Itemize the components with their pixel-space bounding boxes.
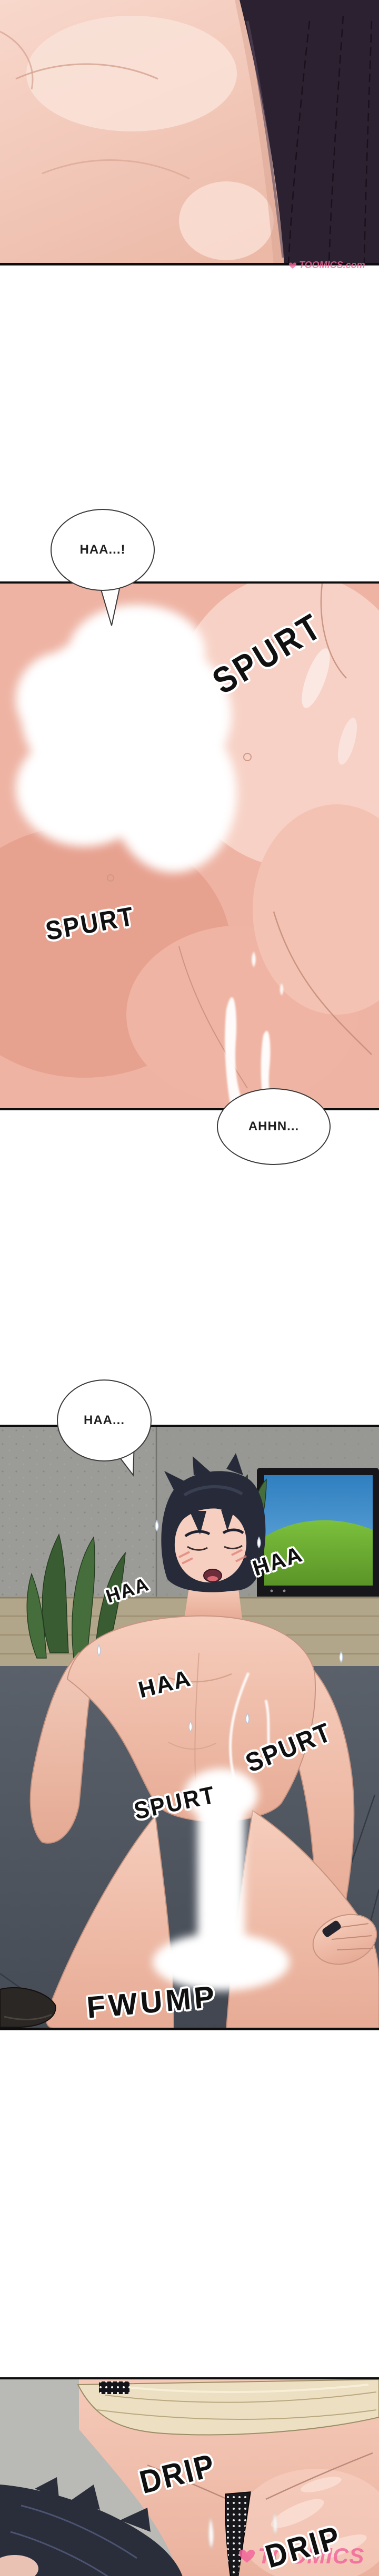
watermark-logo-icon	[238, 2548, 256, 2564]
watermark-logo-icon	[288, 262, 297, 269]
speech-bubble-haa-2: HAA...	[57, 1379, 152, 1461]
comic-page: HAA...! AHHN... HAA... SPURT SPURT HAA H…	[0, 0, 379, 2576]
panel-2	[0, 581, 379, 1110]
speech-bubble-haa-1: HAA...!	[51, 509, 155, 591]
bubble-text: AHHN...	[248, 1119, 299, 1134]
watermark-text: TOOMICS.com	[299, 260, 365, 271]
panel-1	[0, 0, 379, 265]
bubble-text: HAA...!	[80, 543, 126, 557]
site-watermark-top: TOOMICS.com	[288, 260, 365, 271]
speech-bubble-ahhn: AHHN...	[217, 1088, 331, 1165]
panel-2-art	[0, 584, 379, 1110]
bubble-text: HAA...	[84, 1413, 125, 1428]
panel-1-art	[0, 0, 379, 265]
tv	[257, 1468, 379, 1600]
